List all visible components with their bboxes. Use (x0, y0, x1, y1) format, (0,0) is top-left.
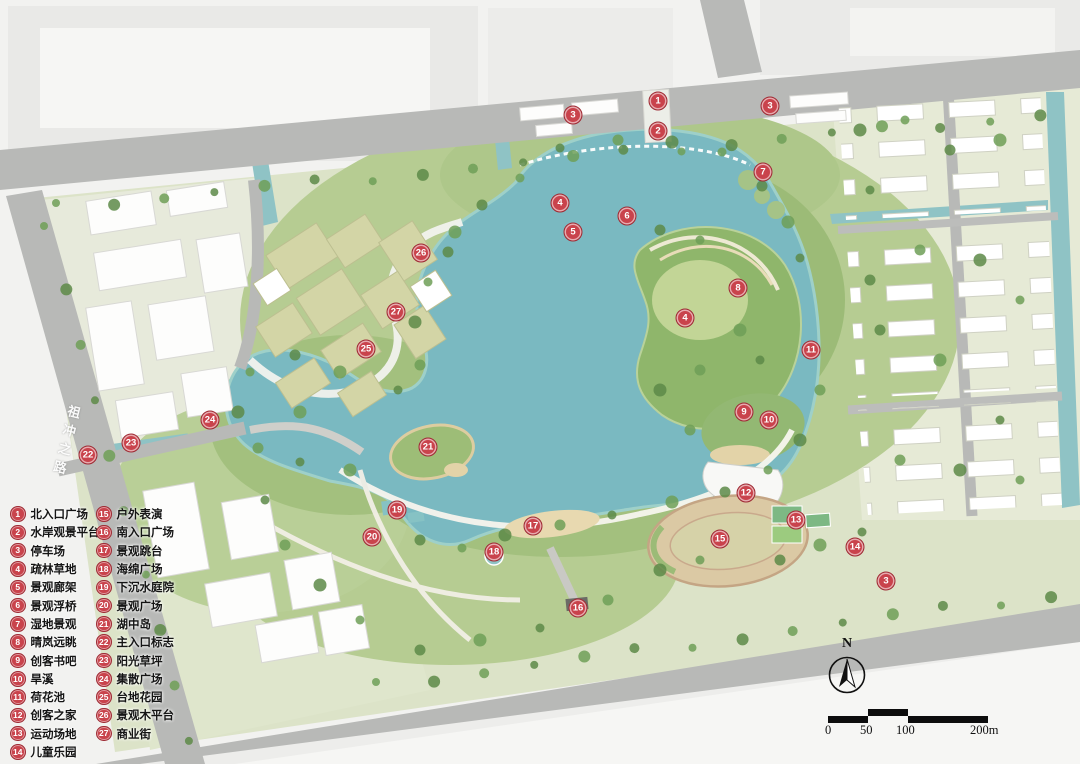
legend-item-label: 户外表演 (117, 506, 163, 522)
map-marker-25: 25 (357, 340, 376, 359)
legend-item-18: 18海绵广场 (96, 560, 174, 578)
legend-column-1: 1北入口广场2水岸观景平台3停车场4疏林草地5景观廊架6景观浮桥7湿地景观8晴岚… (10, 505, 96, 761)
map-marker-21: 21 (419, 438, 438, 457)
legend-item-label: 湖中岛 (117, 616, 152, 632)
legend-item-label: 景观浮桥 (31, 598, 77, 614)
legend-item-17: 17景观跳台 (96, 542, 174, 560)
legend-item-7: 7湿地景观 (10, 615, 96, 633)
scale-tick: 100 (896, 723, 915, 738)
legend-item-13: 13运动场地 (10, 725, 96, 743)
legend-item-16: 16南入口广场 (96, 523, 174, 541)
legend-item-number: 20 (96, 598, 112, 614)
map-marker-20: 20 (363, 528, 382, 547)
legend-item-number: 23 (96, 653, 112, 669)
legend-item-11: 11荷花池 (10, 688, 96, 706)
map-marker-19: 19 (388, 501, 407, 520)
legend-item-label: 运动场地 (31, 726, 77, 742)
legend-item-label: 商业街 (117, 726, 152, 742)
legend: 1北入口广场2水岸观景平台3停车场4疏林草地5景观廊架6景观浮桥7湿地景观8晴岚… (10, 505, 174, 761)
map-marker-10: 10 (760, 411, 779, 430)
legend-item-number: 13 (10, 726, 26, 742)
map-marker-17: 17 (524, 517, 543, 536)
map-marker-18: 18 (485, 543, 504, 562)
legend-item-number: 1 (10, 506, 26, 522)
legend-item-label: 景观木平台 (117, 707, 175, 723)
legend-item-label: 创客书吧 (31, 653, 77, 669)
legend-item-label: 儿童乐园 (31, 744, 77, 760)
legend-item-label: 北入口广场 (31, 506, 89, 522)
legend-item-number: 25 (96, 689, 112, 705)
legend-item-number: 7 (10, 616, 26, 632)
scale-tick: 0 (825, 723, 831, 738)
legend-item-label: 台地花园 (117, 689, 163, 705)
legend-item-19: 19下沉水庭院 (96, 578, 174, 596)
map-marker-27: 27 (387, 303, 406, 322)
legend-item-number: 24 (96, 671, 112, 687)
legend-item-number: 15 (96, 506, 112, 522)
legend-item-label: 晴岚远眺 (31, 634, 77, 650)
legend-item-3: 3停车场 (10, 542, 96, 560)
masterplan-page: 1233344567891011121314151617181920212223… (0, 0, 1080, 764)
legend-item-21: 21湖中岛 (96, 615, 174, 633)
legend-item-label: 创客之家 (31, 707, 77, 723)
legend-item-20: 20景观广场 (96, 596, 174, 614)
legend-item-number: 27 (96, 726, 112, 742)
map-marker-9: 9 (735, 403, 754, 422)
legend-item-label: 集散广场 (117, 671, 163, 687)
legend-item-5: 5景观廊架 (10, 578, 96, 596)
scale-bar: 0 50 100 200m (828, 708, 1008, 740)
map-marker-5: 5 (564, 223, 583, 242)
legend-item-label: 景观广场 (117, 598, 163, 614)
legend-item-number: 2 (10, 525, 26, 541)
legend-item-4: 4疏林草地 (10, 560, 96, 578)
legend-item-12: 12创客之家 (10, 706, 96, 724)
legend-item-number: 19 (96, 580, 112, 596)
legend-item-number: 6 (10, 598, 26, 614)
north-letter: N (842, 636, 852, 651)
legend-item-number: 26 (96, 708, 112, 724)
map-marker-26: 26 (412, 244, 431, 263)
legend-item-10: 10旱溪 (10, 670, 96, 688)
legend-item-number: 12 (10, 708, 26, 724)
map-marker-16: 16 (569, 599, 588, 618)
map-marker-15: 15 (711, 530, 730, 549)
legend-item-number: 16 (96, 525, 112, 541)
legend-item-number: 22 (96, 634, 112, 650)
map-marker-4: 4 (676, 309, 695, 328)
map-marker-4: 4 (551, 194, 570, 213)
legend-item-label: 水岸观景平台 (31, 524, 100, 540)
legend-item-label: 旱溪 (31, 671, 54, 687)
map-marker-7: 7 (754, 163, 773, 182)
legend-item-label: 海绵广场 (117, 561, 163, 577)
legend-item-label: 湿地景观 (31, 616, 77, 632)
legend-item-2: 2水岸观景平台 (10, 523, 96, 541)
legend-item-number: 11 (10, 689, 26, 705)
map-marker-8: 8 (729, 279, 748, 298)
map-marker-22: 22 (79, 446, 98, 465)
legend-item-15: 15户外表演 (96, 505, 174, 523)
legend-item-number: 4 (10, 561, 26, 577)
legend-column-2: 15户外表演16南入口广场17景观跳台18海绵广场19下沉水庭院20景观广场21… (96, 505, 174, 761)
map-marker-12: 12 (737, 484, 756, 503)
map-marker-23: 23 (122, 434, 141, 453)
legend-item-8: 8晴岚远眺 (10, 633, 96, 651)
legend-item-number: 5 (10, 580, 26, 596)
map-marker-3: 3 (877, 572, 896, 591)
legend-item-14: 14儿童乐园 (10, 743, 96, 761)
legend-item-label: 荷花池 (31, 689, 66, 705)
scale-tick: 200m (970, 723, 998, 738)
legend-item-9: 9创客书吧 (10, 651, 96, 669)
legend-item-number: 9 (10, 653, 26, 669)
map-marker-1: 1 (649, 92, 668, 111)
legend-item-6: 6景观浮桥 (10, 596, 96, 614)
map-marker-3: 3 (761, 97, 780, 116)
map-marker-24: 24 (201, 411, 220, 430)
scale-tick: 50 (860, 723, 873, 738)
legend-item-number: 3 (10, 543, 26, 559)
legend-item-number: 10 (10, 671, 26, 687)
legend-item-number: 21 (96, 616, 112, 632)
map-marker-11: 11 (802, 341, 821, 360)
legend-item-24: 24集散广场 (96, 670, 174, 688)
legend-item-number: 14 (10, 744, 26, 760)
legend-item-label: 阳光草坪 (117, 653, 163, 669)
legend-item-label: 景观跳台 (117, 543, 163, 559)
legend-item-27: 27商业街 (96, 725, 174, 743)
legend-item-label: 停车场 (31, 543, 66, 559)
legend-item-label: 景观廊架 (31, 579, 77, 595)
legend-item-label: 疏林草地 (31, 561, 77, 577)
map-marker-14: 14 (846, 538, 865, 557)
legend-item-number: 18 (96, 561, 112, 577)
map-marker-6: 6 (618, 207, 637, 226)
map-marker-3: 3 (564, 106, 583, 125)
map-marker-2: 2 (649, 122, 668, 141)
legend-item-number: 8 (10, 634, 26, 650)
legend-item-number: 17 (96, 543, 112, 559)
map-marker-13: 13 (787, 511, 806, 530)
legend-item-25: 25台地花园 (96, 688, 174, 706)
legend-item-label: 南入口广场 (117, 524, 175, 540)
legend-item-22: 22主入口标志 (96, 633, 174, 651)
legend-item-26: 26景观木平台 (96, 706, 174, 724)
legend-item-label: 主入口标志 (117, 634, 175, 650)
legend-item-1: 1北入口广场 (10, 505, 96, 523)
legend-item-23: 23阳光草坪 (96, 651, 174, 669)
legend-item-label: 下沉水庭院 (117, 579, 175, 595)
